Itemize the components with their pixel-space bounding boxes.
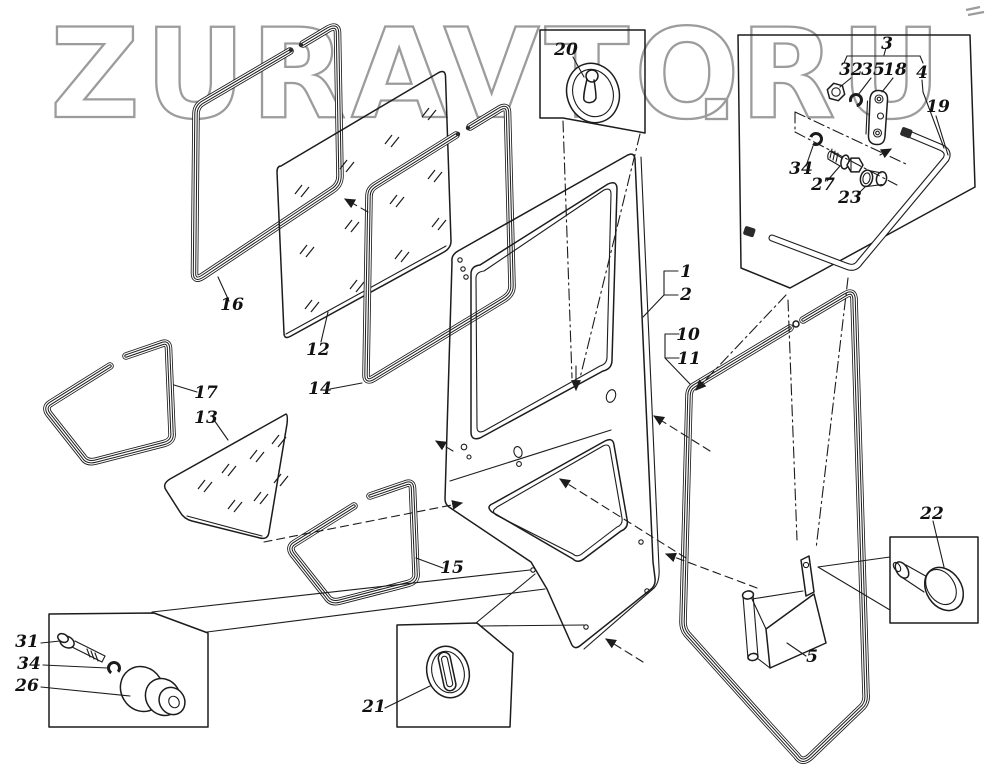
door-window-opening (471, 183, 617, 439)
part-label-35: 35 (861, 60, 885, 80)
part-label-1: 1 (680, 262, 692, 282)
part-label-15: 15 (440, 558, 464, 578)
vent-glass-13 (165, 414, 288, 538)
part-label-12: 12 (306, 340, 330, 360)
part-label-34a: 34 (789, 159, 813, 179)
door-aperture-seal (683, 293, 866, 760)
part-label-2: 2 (679, 285, 692, 305)
rod-threaded-tip (743, 226, 756, 238)
part-label-34b: 34 (17, 654, 41, 674)
glass-thickness-line (187, 516, 262, 536)
buffer-hardware (56, 632, 190, 722)
vent-seal-17 (47, 343, 172, 462)
part-label-32: 32 (839, 60, 863, 80)
seal-end-tip (456, 132, 460, 136)
part-label-19: 19 (926, 97, 950, 117)
diagram-page: ZURAVTO RU (0, 0, 1000, 783)
spring-washer-34b (106, 660, 121, 675)
vent-seal-15 (291, 483, 416, 602)
part-label-10: 10 (676, 325, 700, 345)
door-lower-opening (489, 440, 627, 562)
part-label-22: 22 (919, 504, 944, 524)
watermark-text-left: ZURAVTO (50, 3, 745, 147)
part-label-26: 26 (14, 676, 39, 696)
door-edge-thickness (584, 157, 659, 649)
part-label-17: 17 (194, 383, 218, 403)
part-label-31: 31 (15, 632, 39, 652)
knob-22 (892, 559, 971, 617)
rubber-buffer-26 (112, 658, 190, 722)
bolt-31 (56, 632, 105, 662)
seal-joint-end (793, 321, 799, 327)
part-label-4: 4 (916, 63, 928, 83)
part-label-23: 23 (837, 188, 862, 208)
pocket-strap (801, 556, 814, 596)
part-label-11: 11 (677, 349, 701, 369)
part-label-27: 27 (810, 175, 835, 195)
part-label-18: 18 (883, 60, 907, 80)
seal-end-tip (299, 43, 303, 47)
part-label-14: 14 (308, 379, 332, 399)
part-label-13: 13 (194, 408, 218, 428)
oval-grommet-21 (421, 641, 475, 702)
window-seal-14 (366, 107, 512, 379)
box21-pointer (476, 574, 584, 626)
part-label-5: 5 (806, 647, 818, 667)
box22-pointer (818, 557, 890, 610)
part-label-20: 20 (553, 40, 578, 60)
bolt-27 (828, 149, 863, 172)
seal-end-tip (466, 126, 470, 130)
part-label-21: 21 (361, 697, 386, 717)
door-panel (445, 154, 659, 649)
part-label-16: 16 (220, 295, 244, 315)
watermark-artifact (966, 7, 984, 15)
seal-end-tip (289, 48, 293, 52)
part-label-3: 3 (881, 34, 893, 54)
exploded-parts-diagram: ZURAVTO RU (0, 0, 1000, 783)
